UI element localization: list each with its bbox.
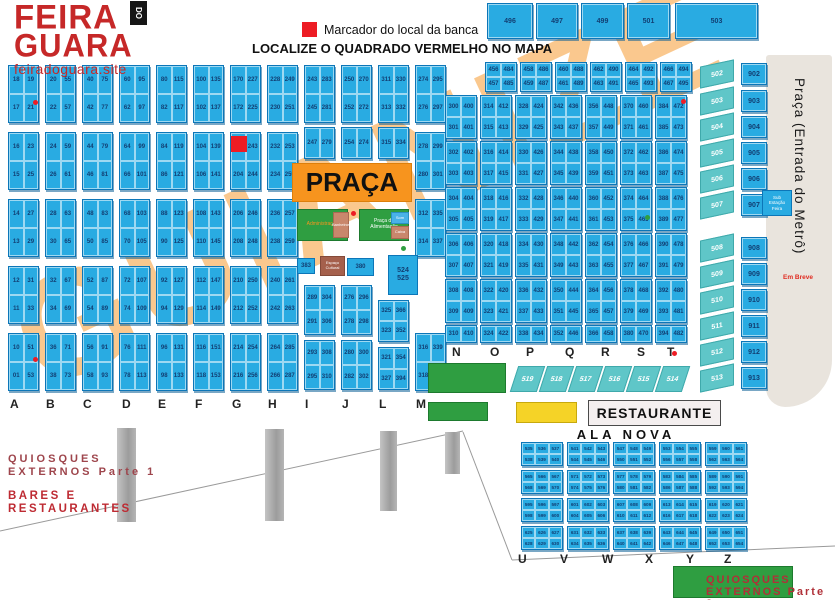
stall-cell[interactable]: 17	[9, 94, 24, 122]
stall-cell[interactable]: 335	[516, 255, 531, 276]
stall-cell[interactable]: 53	[24, 362, 39, 390]
stall-cell[interactable]: 314	[481, 96, 496, 117]
stall-cell[interactable]: 597	[549, 499, 562, 510]
stall-cell[interactable]: 92	[157, 267, 172, 295]
stall-cell[interactable]: 371	[621, 117, 636, 138]
stall-cell[interactable]: 627	[549, 527, 562, 538]
stall-524-525[interactable]: 524 525	[388, 255, 418, 295]
stall-cell[interactable]: 112	[194, 267, 209, 295]
stall-box[interactable]: 649650651652653654	[705, 526, 747, 550]
stall-cell[interactable]: 52	[83, 267, 98, 295]
stall-box[interactable]: 314412315413	[480, 95, 512, 139]
stall-box[interactable]: 280300282302	[341, 340, 372, 390]
stall-cell[interactable]: 246	[246, 200, 261, 228]
stall-cell[interactable]: 14	[9, 200, 24, 228]
stall-box[interactable]: 350444351445	[550, 279, 582, 323]
stall-cell[interactable]: 548	[627, 443, 640, 454]
stall-cell[interactable]: 391	[656, 255, 671, 276]
stall-cell[interactable]: 324	[481, 326, 496, 342]
stall-cell[interactable]: 270	[357, 66, 372, 94]
stall-box[interactable]: 170227172225	[230, 65, 261, 123]
stall-box[interactable]: 325366323352	[378, 300, 409, 342]
stall-cell[interactable]: 296	[357, 286, 372, 310]
stall-cell[interactable]: 56	[83, 334, 98, 362]
green-area-1[interactable]	[428, 363, 506, 393]
stall-box[interactable]: 577578579580581582	[613, 470, 655, 494]
stall-cell[interactable]: 631	[568, 527, 581, 538]
caixa-box[interactable]: Caixa	[391, 226, 409, 239]
stall-cell[interactable]: 538	[522, 454, 535, 465]
stall-cell[interactable]: 565	[522, 471, 535, 482]
stall-cell[interactable]: 577	[614, 471, 627, 482]
stall-cell[interactable]: 419	[496, 255, 511, 276]
stall-cell[interactable]: 96	[157, 334, 172, 362]
stall-cell[interactable]: 578	[627, 471, 640, 482]
stall-cell[interactable]: 415	[496, 163, 511, 184]
stall-cell[interactable]: 401	[461, 117, 476, 138]
stall-box[interactable]: 372462373463	[620, 141, 652, 185]
stall-box[interactable]: 390478391479	[655, 233, 687, 277]
stall-box[interactable]: 362454363455	[585, 233, 617, 277]
stall-cell[interactable]: 619	[706, 499, 719, 510]
stall-cell[interactable]: 493	[641, 77, 656, 91]
stall-cell[interactable]: 539	[535, 454, 548, 465]
stall-cell[interactable]: 97	[135, 94, 150, 122]
stall-cell[interactable]: 303	[446, 163, 461, 184]
stall-cell[interactable]: 413	[496, 117, 511, 138]
stall-cell[interactable]: 212	[231, 295, 246, 323]
stall-cell[interactable]: 433	[531, 301, 546, 322]
stall-cell[interactable]: 334	[516, 234, 531, 255]
stall-cell[interactable]: 93	[98, 362, 113, 390]
stall-cell[interactable]: 313	[379, 94, 394, 122]
stall-cell[interactable]: 421	[496, 301, 511, 322]
stall-cell[interactable]: 238	[268, 228, 283, 256]
stall-cell[interactable]: 620	[719, 499, 732, 510]
stall-box[interactable]: 206246208248	[230, 199, 261, 257]
stall-cell[interactable]: 245	[305, 94, 320, 122]
stall-cell[interactable]: 651	[733, 527, 746, 538]
stall-box[interactable]: 312335314337	[415, 199, 446, 257]
stall-box[interactable]: 541542543544545546	[567, 442, 609, 466]
stall-cell[interactable]: 452	[601, 188, 616, 209]
stall-cell[interactable]: 389	[656, 209, 671, 230]
stall-cell[interactable]: 388	[656, 188, 671, 209]
stall-box[interactable]: 24592661	[45, 132, 76, 190]
stall-box[interactable]: 348442349443	[550, 233, 582, 277]
stall-cell[interactable]: 123	[172, 200, 187, 228]
stall-box[interactable]: 332428333429	[515, 187, 547, 231]
stall-cell[interactable]: 626	[535, 527, 548, 538]
stall-box[interactable]: 501	[627, 3, 670, 39]
stall-cell[interactable]: 304	[320, 286, 335, 310]
stall-box[interactable]: 607608609610611612	[613, 498, 655, 522]
stall-cell[interactable]: 629	[535, 538, 548, 549]
stall-cell[interactable]: 328	[516, 96, 531, 117]
stall-cell[interactable]: 462	[591, 63, 606, 77]
stall-cell[interactable]: 621	[733, 499, 746, 510]
stall-cell[interactable]: 108	[194, 200, 209, 228]
stall-cell[interactable]: 379	[621, 301, 636, 322]
stall-cell[interactable]: 566	[535, 471, 548, 482]
stall-box[interactable]: 300400301401	[445, 95, 477, 139]
stall-cell[interactable]: 390	[656, 234, 671, 255]
stall-cell[interactable]: 611	[627, 510, 640, 521]
stall-cell[interactable]: 588	[687, 482, 700, 493]
stall-cell[interactable]: 618	[687, 510, 700, 521]
stall-cell[interactable]: 625	[522, 527, 535, 538]
stall-box[interactable]: 497	[536, 3, 578, 39]
stall-cell[interactable]: 59	[61, 133, 76, 161]
stall-cell[interactable]: 104	[194, 133, 209, 161]
stall-cell[interactable]: 77	[98, 94, 113, 122]
stall-cell[interactable]: 315	[379, 128, 394, 158]
stall-cell[interactable]: 487	[536, 77, 551, 91]
stall-box[interactable]: 458486459487	[520, 62, 552, 92]
stall-cell[interactable]: 300	[357, 341, 372, 365]
stall-box[interactable]: 378468379469	[620, 279, 652, 323]
stall-cell[interactable]: 350	[551, 280, 566, 301]
stall-cell[interactable]: 547	[614, 443, 627, 454]
stall-cell[interactable]: 125	[172, 228, 187, 256]
stall-box[interactable]: 330426331427	[515, 141, 547, 185]
stall-cell[interactable]: 451	[601, 163, 616, 184]
stall-cell[interactable]: 560	[719, 443, 732, 454]
stall-cell[interactable]: 600	[549, 510, 562, 521]
stall-cell[interactable]: 295	[431, 66, 446, 94]
stall-cell[interactable]: 634	[568, 538, 581, 549]
stall-box[interactable]: 625626627628629630	[521, 526, 563, 550]
stall-cell[interactable]: 139	[209, 133, 224, 161]
stall-cell[interactable]: 228	[268, 66, 283, 94]
stall-cell[interactable]: 73	[61, 362, 76, 390]
stall-cell[interactable]: 909	[742, 264, 766, 284]
stall-cell[interactable]: 362	[586, 234, 601, 255]
stall-cell[interactable]: 242	[268, 295, 283, 323]
stall-cell[interactable]: 407	[461, 255, 476, 276]
stall-cell[interactable]: 266	[268, 362, 283, 390]
stall-box[interactable]: 28633065	[45, 199, 76, 257]
stall-cell[interactable]: 394	[656, 326, 671, 342]
stall-cell[interactable]: 908	[742, 238, 766, 258]
stall-cell[interactable]: 424	[531, 96, 546, 117]
stall-cell[interactable]: 252	[246, 295, 261, 323]
stall-cell[interactable]: 913	[742, 368, 766, 388]
stall-cell[interactable]: 304	[446, 188, 461, 209]
stall-cell[interactable]: 364	[586, 280, 601, 301]
stall-cell[interactable]: 429	[531, 209, 546, 230]
stall-cell[interactable]: 317	[481, 163, 496, 184]
stall-cell[interactable]: 628	[522, 538, 535, 549]
stall-box[interactable]: 589590591592593594	[705, 470, 747, 494]
stall-cell[interactable]: 434	[531, 326, 546, 342]
stall-cell[interactable]: 595	[522, 499, 535, 510]
stall-cell[interactable]: 129	[172, 295, 187, 323]
espaco-cultural-box[interactable]: Espaço Cultural	[320, 256, 345, 276]
stall-box[interactable]: 370460371461	[620, 95, 652, 139]
stall-cell[interactable]: 489	[571, 77, 586, 91]
stall-cell[interactable]: 385	[656, 117, 671, 138]
stall-cell[interactable]: 240	[268, 267, 283, 295]
stall-cell[interactable]: 251	[283, 94, 298, 122]
stall-box[interactable]: 613614615616617618	[659, 498, 701, 522]
stall-cell[interactable]: 377	[621, 255, 636, 276]
stall-cell[interactable]: 147	[209, 267, 224, 295]
stall-cell[interactable]: 644	[673, 527, 686, 538]
stall-cell[interactable]: 15	[9, 161, 24, 189]
stall-cell[interactable]: 299	[431, 133, 446, 161]
stall-box[interactable]: 911	[741, 315, 767, 337]
stall-cell[interactable]: 325	[379, 301, 394, 321]
stall-cell[interactable]: 380	[621, 326, 636, 342]
stall-cell[interactable]: 257	[283, 200, 298, 228]
stall-cell[interactable]: 432	[531, 280, 546, 301]
stall-cell[interactable]: 225	[246, 94, 261, 122]
stall-cell[interactable]: 301	[431, 161, 446, 189]
stall-cell[interactable]: 616	[660, 510, 673, 521]
stall-cell[interactable]: 289	[305, 286, 320, 310]
stall-cell[interactable]: 308	[446, 280, 461, 301]
stall-box[interactable]: 565566567568569570	[521, 470, 563, 494]
stall-box[interactable]: 302402303403	[445, 141, 477, 185]
stall-cell[interactable]: 464	[626, 63, 641, 77]
stall-cell[interactable]: 394	[394, 369, 409, 390]
stall-box[interactable]: 905	[741, 142, 767, 164]
stall-cell[interactable]: 645	[687, 527, 700, 538]
stall-box[interactable]: 631632633634635636	[567, 526, 609, 550]
stall-cell[interactable]: 579	[641, 471, 654, 482]
stall-cell[interactable]: 115	[172, 66, 187, 94]
stall-cell[interactable]: 442	[566, 234, 581, 255]
stall-cell[interactable]: 501	[628, 4, 669, 38]
stall-box[interactable]: 366458	[585, 325, 617, 343]
stall-cell[interactable]: 278	[416, 133, 431, 161]
stall-cell[interactable]: 428	[531, 188, 546, 209]
stall-cell[interactable]: 587	[673, 482, 686, 493]
stall-cell[interactable]: 404	[461, 188, 476, 209]
stall-cell[interactable]: 450	[601, 142, 616, 163]
stall-cell[interactable]: 405	[461, 209, 476, 230]
stall-cell[interactable]: 476	[671, 188, 686, 209]
stall-cell[interactable]: 32	[46, 267, 61, 295]
stall-box[interactable]: 243283245281	[304, 65, 335, 123]
stall-box[interactable]: 342436343437	[550, 95, 582, 139]
stall-cell[interactable]: 448	[601, 96, 616, 117]
stall-box[interactable]: 499	[581, 3, 624, 39]
stall-cell[interactable]: 496	[488, 4, 532, 38]
stall-cell[interactable]: 90	[157, 228, 172, 256]
stall-cell[interactable]: 300	[446, 96, 461, 117]
stall-cell[interactable]: 310	[320, 365, 335, 389]
stall-cell[interactable]: 360	[586, 188, 601, 209]
stall-cell[interactable]: 466	[661, 63, 676, 77]
stall-cell[interactable]: 82	[157, 94, 172, 122]
stall-cell[interactable]: 454	[601, 234, 616, 255]
stall-box[interactable]: 8011582117	[156, 65, 187, 123]
stall-cell[interactable]: 639	[641, 527, 654, 538]
stall-cell[interactable]: 311	[379, 66, 394, 94]
stall-box[interactable]: 376466377467	[620, 233, 652, 277]
stall-cell[interactable]: 574	[568, 482, 581, 493]
stall-cell[interactable]: 63	[61, 200, 76, 228]
stall-cell[interactable]: 105	[135, 228, 150, 256]
stall-cell[interactable]: 247	[305, 128, 320, 158]
stall-cell[interactable]: 366	[586, 326, 601, 342]
stall-cell[interactable]: 103	[135, 200, 150, 228]
stall-cell[interactable]: 647	[673, 538, 686, 549]
stall-cell[interactable]: 302	[446, 142, 461, 163]
stall-cell[interactable]: 332	[394, 94, 409, 122]
stall-cell[interactable]: 91	[98, 334, 113, 362]
stall-cell[interactable]: 633	[595, 527, 608, 538]
stall-cell[interactable]: 320	[481, 234, 496, 255]
stall-box[interactable]: 328424329425	[515, 95, 547, 139]
stall-box[interactable]: 264285266287	[267, 333, 298, 391]
stall-box[interactable]: 112147114149	[193, 266, 224, 324]
stall-cell[interactable]: 34	[46, 295, 61, 323]
stall-box[interactable]: 912	[741, 341, 767, 363]
stall-cell[interactable]: 248	[246, 228, 261, 256]
som-box[interactable]: Som	[391, 212, 409, 224]
stall-box[interactable]: 466494467495	[660, 62, 692, 92]
stall-cell[interactable]: 387	[656, 163, 671, 184]
stall-cell[interactable]: 549	[641, 443, 654, 454]
stall-cell[interactable]: 568	[522, 482, 535, 493]
stall-cell[interactable]: 436	[566, 96, 581, 117]
stall-box[interactable]: 310410	[445, 325, 477, 343]
stall-cell[interactable]: 69	[61, 295, 76, 323]
stall-cell[interactable]: 307	[446, 255, 461, 276]
stall-cell[interactable]: 287	[283, 362, 298, 390]
stall-box[interactable]: 250270252272	[341, 65, 372, 123]
stall-cell[interactable]: 458	[521, 63, 536, 77]
stall-cell[interactable]: 11	[9, 295, 24, 323]
stall-cell[interactable]: 485	[501, 77, 516, 91]
stall-cell[interactable]: 315	[481, 117, 496, 138]
stall-cell[interactable]: 243	[305, 66, 320, 94]
stall-cell[interactable]: 540	[549, 454, 562, 465]
stall-box[interactable]: 108143110145	[193, 199, 224, 257]
stall-cell[interactable]: 316	[481, 142, 496, 163]
stall-cell[interactable]: 86	[157, 161, 172, 189]
stall-cell[interactable]: 638	[627, 527, 640, 538]
stall-cell[interactable]: 44	[83, 133, 98, 161]
stall-cell[interactable]: 280	[416, 161, 431, 189]
stall-cell[interactable]: 244	[246, 161, 261, 189]
stall-box[interactable]: 535536537538539540	[521, 442, 563, 466]
stall-cell[interactable]: 107	[135, 267, 150, 295]
praca-box[interactable]: PRAÇA	[292, 163, 412, 202]
stall-cell[interactable]: 443	[566, 255, 581, 276]
stall-cell[interactable]: 384	[656, 96, 671, 117]
stall-cell[interactable]: 376	[621, 234, 636, 255]
stall-cell[interactable]: 573	[595, 471, 608, 482]
stall-box[interactable]: 8411986121	[156, 132, 187, 190]
stall-cell[interactable]: 366	[394, 301, 409, 321]
stall-box[interactable]: 374464375465	[620, 187, 652, 231]
stall-box[interactable]: 321354327394	[378, 347, 409, 390]
stall-cell[interactable]: 13	[9, 228, 24, 256]
stall-cell[interactable]: 131	[172, 334, 187, 362]
stall-cell[interactable]: 491	[606, 77, 621, 91]
stall-cell[interactable]: 646	[660, 538, 673, 549]
stall-cell[interactable]: 352	[394, 321, 409, 341]
stall-cell[interactable]: 372	[621, 142, 636, 163]
stall-cell[interactable]: 592	[706, 482, 719, 493]
stall-cell[interactable]: 71	[61, 334, 76, 362]
stall-cell[interactable]: 145	[209, 228, 224, 256]
stall-cell[interactable]: 584	[673, 471, 686, 482]
stall-cell[interactable]: 622	[706, 510, 719, 521]
stall-cell[interactable]: 114	[194, 295, 209, 323]
stall-box[interactable]: 247279	[304, 127, 335, 159]
stall-cell[interactable]: 456	[486, 63, 501, 77]
stall-cell[interactable]: 654	[733, 538, 746, 549]
stall-cell[interactable]: 559	[706, 443, 719, 454]
stall-cell[interactable]: 649	[706, 527, 719, 538]
stall-cell[interactable]: 252	[342, 94, 357, 122]
stall-box[interactable]: 7210774109	[119, 266, 150, 324]
stall-cell[interactable]: 488	[571, 63, 586, 77]
stall-cell[interactable]: 623	[719, 510, 732, 521]
stall-cell[interactable]: 536	[535, 443, 548, 454]
stall-cell[interactable]: 585	[687, 471, 700, 482]
stall-cell[interactable]: 456	[601, 280, 616, 301]
stall-cell[interactable]: 79	[98, 133, 113, 161]
stall-cell[interactable]: 283	[320, 66, 335, 94]
stall-cell[interactable]: 94	[157, 295, 172, 323]
stall-cell[interactable]: 28	[46, 200, 61, 228]
stall-box[interactable]: 116151118153	[193, 333, 224, 391]
stall-cell[interactable]: 143	[209, 200, 224, 228]
stall-cell[interactable]: 555	[687, 443, 700, 454]
stall-box[interactable]: 360452361453	[585, 187, 617, 231]
stall-cell[interactable]: 632	[581, 527, 594, 538]
stall-cell[interactable]: 42	[83, 94, 98, 122]
stall-cell[interactable]: 216	[231, 362, 246, 390]
stall-box[interactable]: 913	[741, 367, 767, 389]
stall-box[interactable]: 906	[741, 168, 767, 190]
stall-cell[interactable]: 343	[551, 117, 566, 138]
stall-cell[interactable]: 361	[586, 209, 601, 230]
stall-cell[interactable]: 458	[601, 326, 616, 342]
stall-cell[interactable]: 10	[9, 334, 24, 362]
stall-cell[interactable]: 403	[461, 163, 476, 184]
stall-cell[interactable]: 590	[719, 471, 732, 482]
stall-box[interactable]: 52875489	[82, 266, 113, 324]
stall-cell[interactable]: 392	[656, 280, 671, 301]
stall-cell[interactable]: 254	[342, 128, 357, 158]
stall-cell[interactable]: 322	[481, 280, 496, 301]
stall-cell[interactable]: 351	[551, 301, 566, 322]
stall-cell[interactable]: 583	[660, 471, 673, 482]
stall-cell[interactable]: 95	[135, 66, 150, 94]
stall-cell[interactable]: 21	[24, 94, 39, 122]
stall-cell[interactable]: 465	[626, 77, 641, 91]
stall-box[interactable]: 460488461489	[555, 62, 587, 92]
stall-cell[interactable]: 210	[231, 267, 246, 295]
stall-box[interactable]: 240261242263	[267, 266, 298, 324]
stall-cell[interactable]: 274	[357, 128, 372, 158]
stall-cell[interactable]: 297	[431, 94, 446, 122]
stall-cell[interactable]: 84	[157, 133, 172, 161]
stall-cell[interactable]: 342	[551, 96, 566, 117]
stall-cell[interactable]: 101	[135, 161, 150, 189]
stall-cell[interactable]: 133	[172, 362, 187, 390]
stall-cell[interactable]: 546	[595, 454, 608, 465]
stall-cell[interactable]: 61	[61, 161, 76, 189]
stall-cell[interactable]: 276	[416, 94, 431, 122]
